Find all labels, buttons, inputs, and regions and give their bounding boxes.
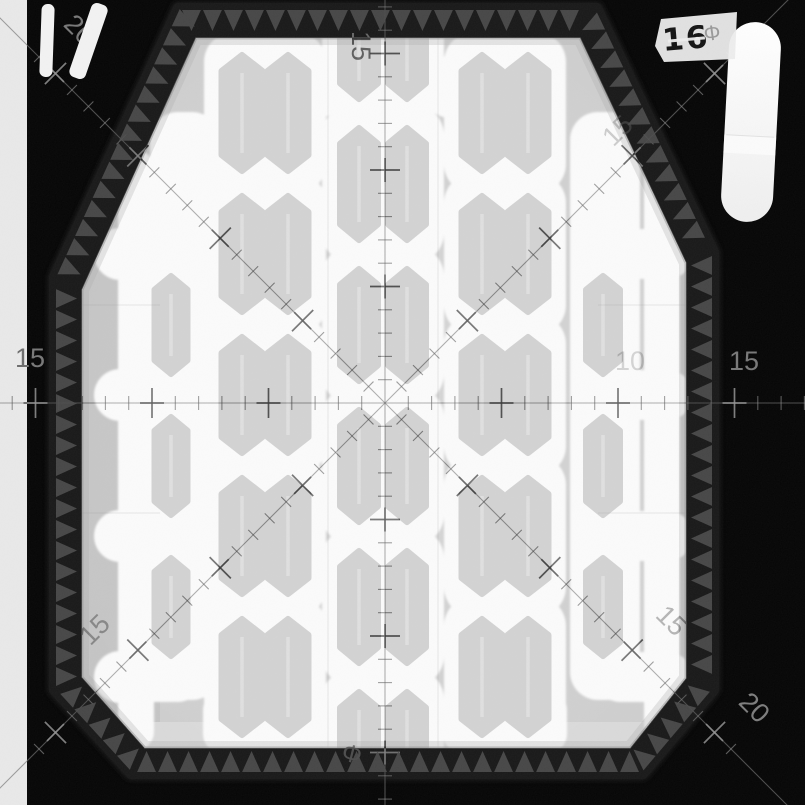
- xray-radiograph: 201515151015151520Φ16Φ: [0, 0, 805, 805]
- film-grain: [0, 0, 805, 805]
- radiograph-canvas: 201515151015151520Φ16Φ: [0, 0, 805, 805]
